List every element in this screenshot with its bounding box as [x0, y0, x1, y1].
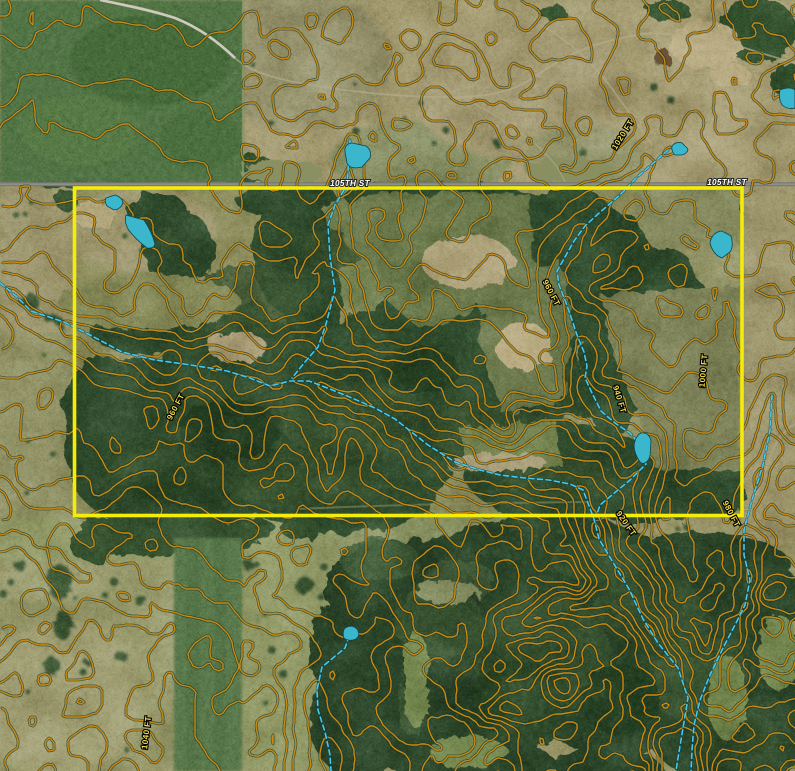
svg-text:105TH ST: 105TH ST	[330, 179, 370, 188]
svg-text:105TH ST: 105TH ST	[707, 178, 747, 187]
